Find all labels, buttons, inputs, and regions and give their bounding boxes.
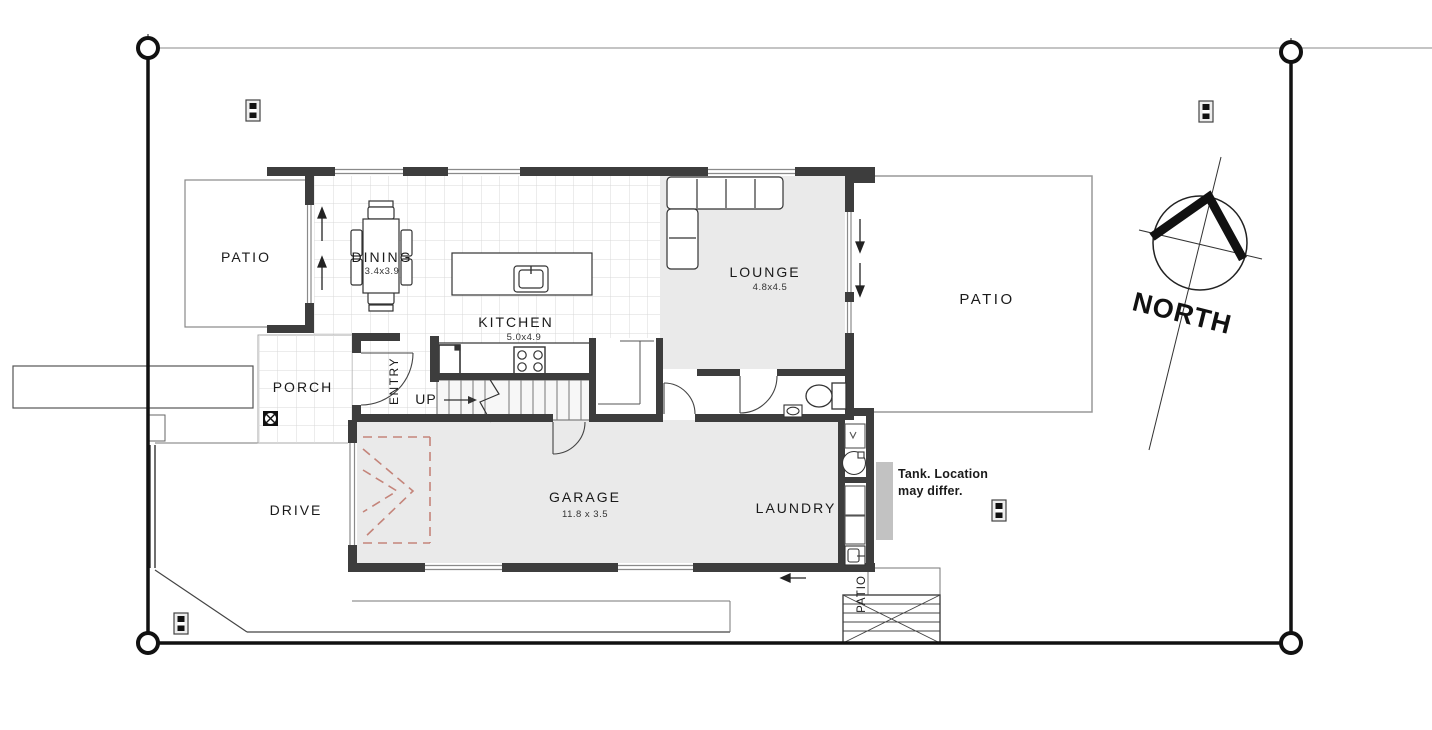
label-lounge: LOUNGE — [729, 264, 800, 280]
garage-door-opening — [348, 443, 357, 545]
toilet — [806, 383, 846, 409]
service-marker — [263, 411, 278, 426]
boundary-box — [148, 415, 165, 441]
label-laundry: LAUNDRY — [756, 500, 837, 516]
wall-segment — [348, 420, 357, 443]
corner-marker — [138, 34, 158, 62]
label-up: UP — [415, 391, 436, 407]
wall-segment — [845, 167, 854, 212]
survey-peg — [992, 500, 1006, 521]
wall-segment — [352, 333, 361, 353]
wall-segment — [352, 414, 553, 422]
floor-plan-drawing: PATIO PATIO DINING 3.4x3.9 KITCHEN 5.0x4… — [0, 0, 1432, 730]
arrow-down — [856, 263, 864, 296]
corner-marker — [138, 633, 158, 653]
wall-return — [853, 176, 875, 183]
wall-segment — [305, 167, 314, 205]
survey-peg — [174, 613, 188, 634]
wall-segment — [656, 338, 663, 422]
label-garage: GARAGE — [549, 489, 621, 505]
wall-segment — [590, 414, 662, 422]
wall-segment — [267, 167, 335, 176]
window — [448, 167, 520, 176]
floor-plan-page: PATIO PATIO DINING 3.4x3.9 KITCHEN 5.0x4… — [0, 0, 1432, 730]
wall-segment — [697, 369, 740, 376]
wall-segment — [348, 563, 425, 572]
dims-garage: 11.8 x 3.5 — [562, 509, 608, 520]
basin — [784, 405, 802, 417]
tank-note: Tank. Location may differ. — [898, 467, 988, 498]
wall-segment — [352, 405, 361, 422]
pantry-floor — [596, 338, 656, 418]
arrow-left — [781, 574, 806, 582]
label-porch: PORCH — [273, 379, 334, 395]
dims-kitchen: 5.0x4.9 — [507, 332, 542, 343]
laundry-tub — [845, 546, 865, 565]
label-patio-bottom: PATIO — [856, 575, 868, 613]
deck-landing — [868, 568, 940, 595]
window-sliding-east — [845, 212, 854, 333]
label-entry: ENTRY — [387, 357, 401, 405]
label-drive: DRIVE — [270, 502, 323, 518]
window — [335, 167, 403, 176]
drive-edge-diagonal — [155, 570, 247, 632]
footpath — [13, 366, 253, 408]
corner-marker — [1281, 38, 1301, 66]
wall-segment — [866, 408, 874, 568]
survey-peg — [246, 100, 260, 121]
wall-return — [267, 325, 309, 333]
survey-peg — [1199, 101, 1213, 122]
wall-segment — [838, 477, 866, 483]
label-patio-right: PATIO — [959, 291, 1014, 308]
label-north: NORTH — [1130, 286, 1235, 340]
water-tank — [876, 462, 893, 540]
tank-note-line1: Tank. Location — [898, 467, 988, 481]
stove — [514, 347, 545, 374]
wall-segment — [845, 292, 854, 302]
wall-segment — [403, 167, 448, 176]
label-dining: DINING — [352, 249, 413, 265]
corner-marker — [1281, 633, 1301, 653]
label-patio-left: PATIO — [221, 249, 271, 265]
kitchen-island — [452, 253, 592, 295]
wall-segment — [502, 563, 618, 572]
north-compass: NORTH — [1130, 157, 1262, 450]
wall-segment — [437, 373, 593, 380]
wall-segment — [777, 369, 854, 376]
wall-segment — [795, 167, 875, 176]
laundry-appliances — [843, 424, 866, 565]
tank-note-line2: may differ. — [898, 484, 963, 498]
window — [708, 167, 795, 176]
kitchen-bench — [437, 343, 592, 375]
wall-segment — [695, 414, 845, 422]
wall-segment — [520, 167, 708, 176]
dims-dining: 3.4x3.9 — [365, 266, 400, 277]
dims-lounge: 4.8x4.5 — [753, 282, 788, 293]
label-kitchen: KITCHEN — [478, 314, 553, 330]
window-sliding-west — [305, 205, 314, 303]
wall-segment — [838, 420, 845, 567]
arrow-down — [856, 219, 864, 252]
